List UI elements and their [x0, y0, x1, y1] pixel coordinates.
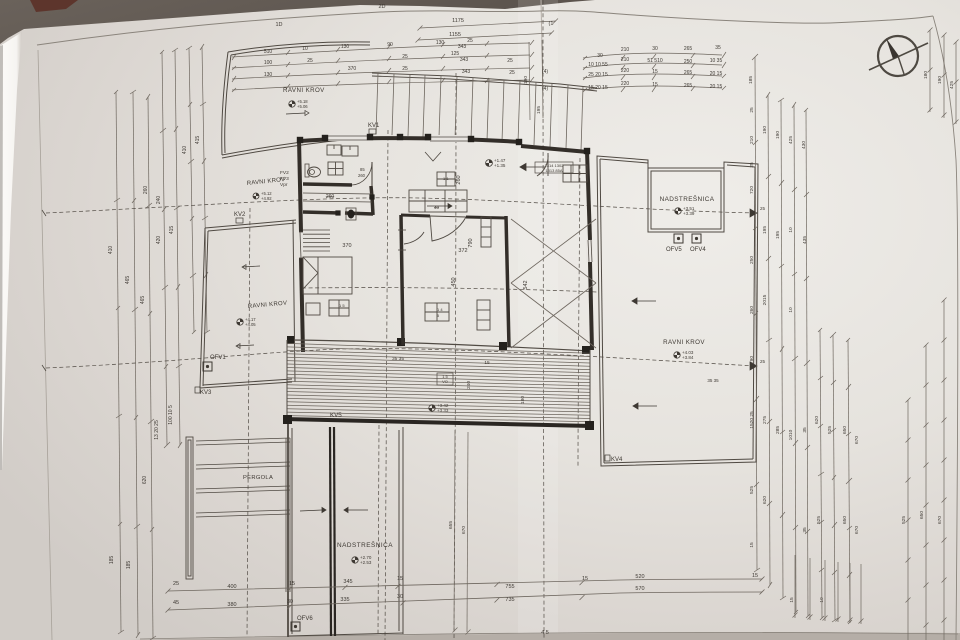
- svg-text:670: 670: [854, 526, 860, 534]
- svg-text:15: 15: [652, 69, 658, 75]
- svg-text:OFV5: OFV5: [666, 247, 682, 253]
- svg-text:35 35: 35 35: [707, 378, 719, 383]
- svg-text:15: 15: [484, 360, 490, 366]
- svg-text:51 510: 51 510: [647, 58, 663, 64]
- svg-text:400: 400: [227, 584, 236, 590]
- svg-text:+5.06: +5.06: [297, 104, 308, 109]
- svg-text:40: 40: [434, 205, 440, 210]
- svg-text:1155: 1155: [449, 32, 461, 38]
- svg-text:345: 345: [343, 579, 352, 585]
- svg-text:+4.92: +4.92: [261, 196, 272, 201]
- svg-text:25: 25: [402, 66, 408, 72]
- svg-text:1010: 1010: [788, 429, 794, 440]
- svg-text:25: 25: [760, 206, 766, 211]
- svg-text:OFV1: OFV1: [210, 355, 226, 361]
- svg-text:10: 10: [788, 227, 794, 233]
- svg-text:125: 125: [451, 51, 460, 57]
- svg-text:35: 35: [802, 427, 808, 433]
- svg-text:372: 372: [458, 248, 467, 254]
- svg-text:260: 260: [326, 194, 335, 200]
- svg-text:185: 185: [126, 561, 132, 570]
- svg-text:265: 265: [684, 83, 693, 89]
- svg-text:1 5: 1 5: [339, 303, 345, 308]
- svg-text:20 15: 20 15: [710, 71, 723, 77]
- svg-text:35 35: 35 35: [392, 356, 404, 362]
- svg-text:1 1: 1 1: [443, 176, 449, 181]
- svg-text:755: 755: [505, 584, 514, 590]
- svg-text:25: 25: [402, 54, 408, 60]
- svg-text:KV4: KV4: [611, 457, 623, 463]
- svg-text:25: 25: [760, 359, 766, 364]
- svg-text:670: 670: [937, 516, 943, 524]
- svg-text:KV1: KV1: [368, 123, 380, 129]
- svg-text:90: 90: [387, 42, 393, 48]
- svg-text:650: 650: [842, 516, 848, 524]
- svg-text:FV2: FV2: [280, 170, 289, 176]
- svg-text:250: 250: [684, 59, 693, 65]
- svg-text:180: 180: [520, 396, 526, 404]
- svg-text:10: 10: [788, 307, 794, 313]
- svg-text:15: 15: [752, 573, 758, 579]
- svg-text:285: 285: [775, 426, 781, 434]
- svg-text:465: 465: [125, 276, 131, 285]
- svg-text:+3.39: +3.39: [683, 211, 695, 216]
- svg-text:85: 85: [360, 167, 365, 172]
- svg-text:260: 260: [456, 175, 462, 184]
- svg-text:+3.33: +3.33: [437, 408, 449, 413]
- svg-text:195: 195: [762, 226, 768, 234]
- svg-text:10 35: 10 35: [710, 58, 723, 64]
- svg-text:425: 425: [788, 136, 794, 144]
- svg-text:20 15: 20 15: [710, 84, 723, 90]
- svg-text:15: 15: [289, 581, 295, 587]
- svg-text:335: 335: [340, 597, 349, 603]
- svg-text:190: 190: [775, 131, 781, 139]
- svg-text:260: 260: [143, 186, 149, 195]
- svg-text:35: 35: [715, 45, 721, 51]
- svg-text:30: 30: [597, 53, 603, 59]
- svg-text:265: 265: [684, 70, 693, 76]
- svg-text:370: 370: [348, 66, 357, 72]
- svg-text:(1: (1: [549, 21, 554, 27]
- svg-text:(4): (4): [542, 86, 548, 92]
- svg-text:KV3: KV3: [200, 390, 212, 396]
- svg-text:25: 25: [467, 38, 473, 44]
- svg-text:25: 25: [749, 107, 755, 113]
- svg-text:425: 425: [949, 81, 955, 89]
- svg-text:25: 25: [307, 58, 313, 64]
- svg-text:25 20 15: 25 20 15: [588, 72, 608, 78]
- svg-text:620: 620: [142, 476, 148, 485]
- svg-text:1520 25: 1520 25: [749, 411, 755, 429]
- svg-text:OFV4: OFV4: [690, 247, 706, 253]
- svg-text:720: 720: [749, 186, 755, 194]
- svg-text:15: 15: [789, 597, 795, 603]
- svg-text:100: 100: [264, 60, 273, 66]
- svg-text:(4): (4): [542, 69, 548, 75]
- svg-text:4 5: 4 5: [541, 630, 549, 636]
- svg-text:2D: 2D: [378, 4, 385, 10]
- svg-text:190: 190: [762, 126, 768, 134]
- svg-text:650: 650: [842, 426, 848, 434]
- svg-text:30: 30: [652, 46, 658, 52]
- svg-text:570: 570: [635, 586, 644, 592]
- svg-text:415: 415: [195, 136, 201, 145]
- svg-text:OFV6: OFV6: [297, 616, 313, 622]
- svg-text:RAVNI KROV: RAVNI KROV: [283, 87, 325, 94]
- svg-text:130: 130: [264, 72, 273, 78]
- svg-text:410: 410: [182, 146, 188, 155]
- svg-text:RAVNI KROV: RAVNI KROV: [663, 339, 705, 346]
- svg-text:525: 525: [816, 516, 822, 524]
- svg-text:25: 25: [509, 70, 515, 76]
- svg-text:185: 185: [748, 76, 754, 84]
- svg-text:370: 370: [342, 243, 351, 249]
- svg-text:+1.35: +1.35: [494, 163, 506, 168]
- svg-text:240: 240: [156, 196, 162, 205]
- svg-text:435: 435: [802, 236, 808, 244]
- svg-text:525: 525: [827, 426, 833, 434]
- svg-text:520: 520: [635, 574, 644, 580]
- svg-text:420: 420: [156, 236, 162, 245]
- svg-text:13 20 25: 13 20 25: [154, 420, 160, 440]
- svg-text:525: 525: [749, 486, 755, 494]
- svg-text:FV3: FV3: [280, 176, 289, 182]
- svg-text:15: 15: [397, 576, 403, 582]
- svg-text:670: 670: [461, 526, 467, 534]
- svg-text:620: 620: [762, 496, 768, 504]
- svg-text:15: 15: [582, 576, 588, 582]
- svg-text:210: 210: [621, 47, 630, 53]
- svg-text:343: 343: [462, 69, 471, 75]
- svg-text:1175: 1175: [452, 18, 464, 24]
- svg-text:+2.53: +2.53: [360, 560, 372, 565]
- svg-text:185: 185: [109, 556, 115, 565]
- svg-text:VO: VO: [442, 379, 448, 384]
- svg-text:100 10 5: 100 10 5: [168, 405, 174, 425]
- svg-text:260: 260: [749, 306, 755, 314]
- svg-text:PERGOLA: PERGOLA: [243, 475, 273, 481]
- svg-text:25: 25: [173, 581, 179, 587]
- svg-text:465: 465: [140, 296, 146, 305]
- svg-text:180: 180: [923, 71, 929, 79]
- svg-text:430: 430: [801, 141, 807, 149]
- svg-text:670: 670: [854, 436, 860, 444]
- svg-text:10: 10: [302, 46, 308, 52]
- svg-text:195: 195: [775, 231, 781, 239]
- svg-text:15: 15: [652, 82, 658, 88]
- svg-text:220: 220: [621, 68, 630, 74]
- svg-text:620: 620: [814, 416, 820, 424]
- svg-text:260: 260: [358, 173, 366, 178]
- svg-text:450: 450: [451, 277, 457, 286]
- svg-text:KV5: KV5: [330, 412, 342, 419]
- svg-text:525: 525: [901, 516, 907, 524]
- svg-text:790: 790: [468, 238, 474, 247]
- svg-text:30: 30: [287, 599, 293, 605]
- svg-text:1 4: 1 4: [437, 307, 443, 312]
- svg-text:650: 650: [919, 511, 925, 519]
- svg-text:343: 343: [458, 44, 467, 50]
- svg-text:15: 15: [749, 542, 755, 548]
- svg-text:195: 195: [536, 106, 542, 114]
- svg-text:NADSTREŠNICA: NADSTREŠNICA: [337, 540, 393, 549]
- svg-text:45: 45: [173, 600, 179, 606]
- svg-text:+4.05: +4.05: [245, 322, 256, 327]
- svg-text:+3.84: +3.84: [682, 355, 694, 360]
- svg-text:190: 190: [523, 76, 529, 84]
- svg-text:250: 250: [749, 256, 755, 264]
- svg-text:30: 30: [397, 594, 403, 600]
- svg-text:220: 220: [621, 81, 630, 87]
- svg-text:KV2: KV2: [234, 212, 246, 218]
- svg-text:265: 265: [684, 46, 693, 52]
- svg-text:343: 343: [460, 57, 469, 63]
- svg-text:410: 410: [108, 246, 114, 255]
- svg-text:735: 735: [505, 597, 514, 603]
- svg-text:NADSTREŠNICA: NADSTREŠNICA: [660, 194, 715, 203]
- svg-text:Vpr: Vpr: [280, 182, 288, 188]
- svg-text:1D: 1D: [275, 22, 282, 28]
- svg-text:190: 190: [937, 76, 943, 84]
- svg-text:380: 380: [227, 602, 236, 608]
- svg-text:655: 655: [448, 521, 454, 529]
- svg-text:275: 275: [762, 416, 768, 424]
- svg-text:790: 790: [749, 356, 755, 364]
- svg-text:10 10 55: 10 10 55: [588, 62, 608, 68]
- svg-text:25: 25: [749, 162, 755, 168]
- svg-text:210: 210: [749, 136, 755, 144]
- svg-text:25: 25: [507, 58, 513, 64]
- svg-text:210: 210: [621, 57, 630, 63]
- svg-text:2015: 2015: [762, 294, 768, 305]
- svg-text:130: 130: [436, 40, 445, 46]
- svg-text:542: 542: [523, 280, 529, 289]
- svg-text:35: 35: [802, 527, 808, 533]
- svg-text:415: 415: [169, 226, 175, 235]
- svg-text:240: 240: [466, 381, 472, 389]
